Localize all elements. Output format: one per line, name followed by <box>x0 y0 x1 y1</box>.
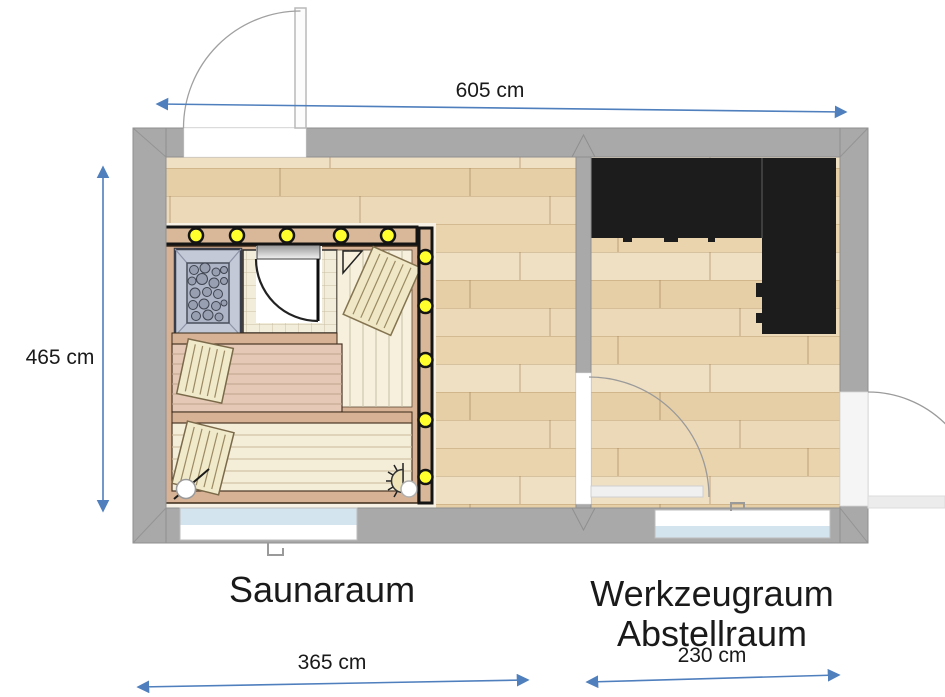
bench-edge <box>172 412 412 423</box>
dimension-label-sauna-width: 365 cm <box>298 651 367 674</box>
room-label-sauna: Saunaraum <box>229 569 415 610</box>
dimension-label-total-depth: 465 cm <box>26 346 95 369</box>
door-leaf <box>591 486 703 497</box>
sauna-light-icon <box>230 229 244 243</box>
window-handle-icon <box>268 543 283 555</box>
sauna-light-icon <box>189 229 203 243</box>
dimension-arrow <box>588 675 838 682</box>
exterior-door-right <box>840 392 945 508</box>
floor-plan: 605 cm 465 cm 365 cm 230 cm Saunaraum We… <box>0 0 945 697</box>
dimension-label-total-width: 605 cm <box>456 79 525 102</box>
dimension-arrow <box>158 104 845 112</box>
wall-left <box>133 128 166 543</box>
dimension-total-width: 605 cm <box>158 79 845 112</box>
door-swing-arc <box>868 392 945 502</box>
sauna-light-strip-top <box>164 227 417 244</box>
sauna-light-icon <box>419 250 433 264</box>
sauna-door-panel <box>257 244 320 259</box>
sauna-light-icon <box>334 229 348 243</box>
upper-bench <box>172 339 342 412</box>
sauna-light-icon <box>381 229 395 243</box>
door-leaf <box>295 8 306 128</box>
sauna-light-icon <box>419 299 433 313</box>
sauna-light-icon <box>419 413 433 427</box>
entrance-door-top <box>184 8 307 157</box>
sauna-light-strip-side <box>419 228 433 503</box>
sauna-heater <box>175 249 241 336</box>
sauna-light-icon <box>419 353 433 367</box>
window-sauna-room <box>180 508 357 555</box>
sauna-light-icon <box>419 470 433 484</box>
sauna-cabin <box>161 223 436 509</box>
sauna-light-icon <box>280 229 294 243</box>
door-swing-arc <box>184 11 301 128</box>
room-label-storage-line2: Abstellraum <box>617 613 807 654</box>
dimension-total-depth: 465 cm <box>26 168 103 510</box>
door-leaf <box>868 496 945 508</box>
floor-plan-canvas: 605 cm 465 cm 365 cm 230 cm Saunaraum We… <box>0 0 945 697</box>
dimension-sauna-width: 365 cm <box>139 651 527 687</box>
room-label-storage-line1: Werkzeugraum <box>590 573 833 614</box>
sauna-door <box>256 244 322 323</box>
lower-bench <box>172 421 417 499</box>
dimension-arrow <box>139 680 527 687</box>
